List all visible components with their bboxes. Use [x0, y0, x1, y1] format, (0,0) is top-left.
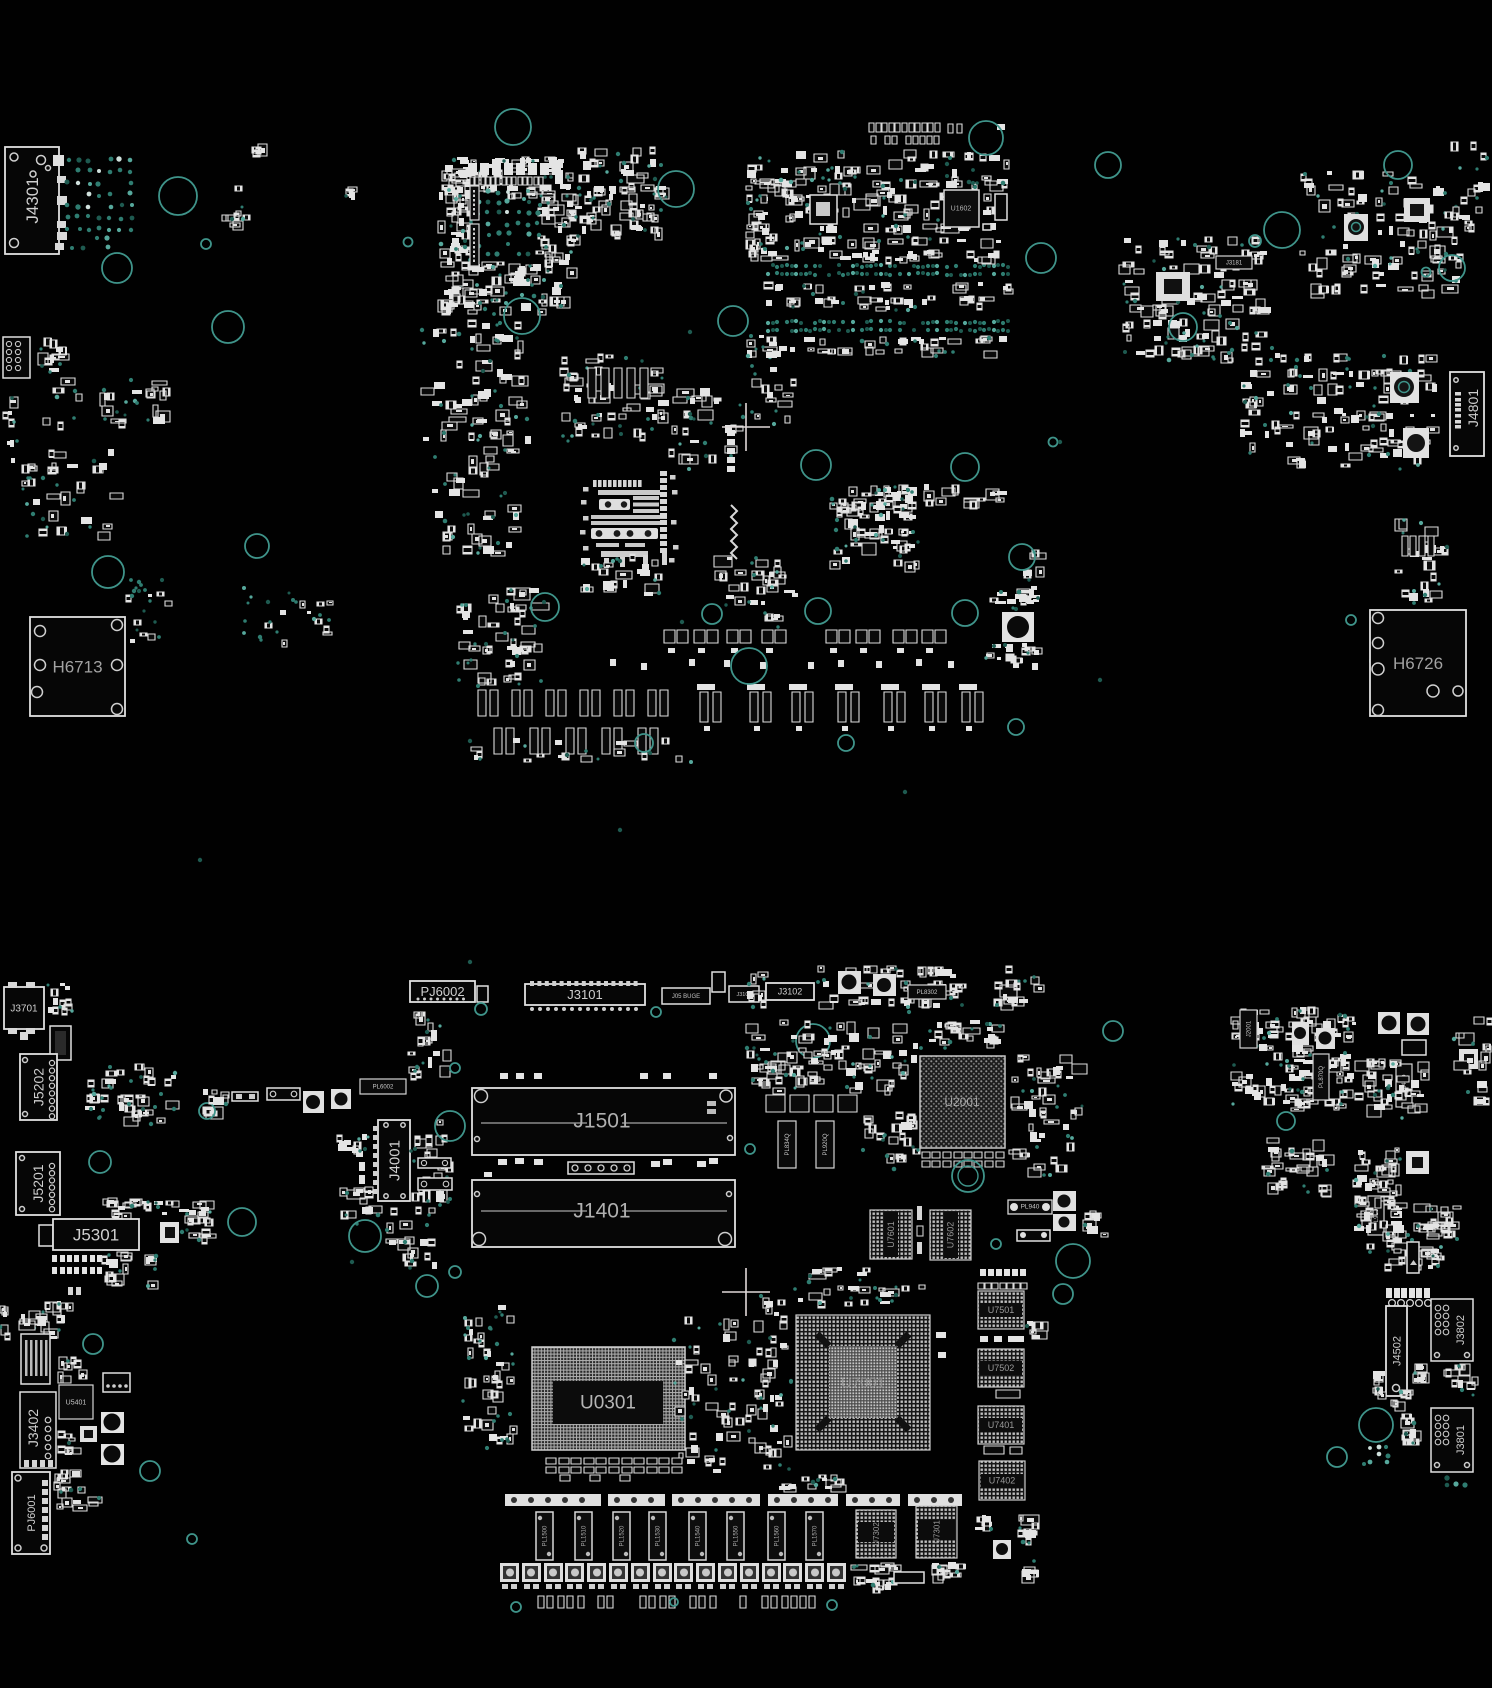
svg-text:J4301: J4301	[23, 177, 42, 223]
svg-text:PL8302: PL8302	[917, 990, 938, 996]
svg-text:PL834Q: PL834Q	[785, 1133, 791, 1155]
svg-text:J1401: J1401	[573, 1199, 630, 1222]
svg-text:J05 BUGE: J05 BUGE	[672, 994, 700, 1000]
svg-text:PL1510: PL1510	[582, 1525, 588, 1546]
svg-text:PL940: PL940	[1021, 1203, 1040, 1210]
svg-text:U7602: U7602	[946, 1222, 956, 1249]
svg-text:U2001: U2001	[944, 1095, 980, 1109]
svg-text:U7501: U7501	[988, 1305, 1015, 1315]
svg-text:PL1530: PL1530	[656, 1525, 662, 1546]
svg-text:PL1540: PL1540	[696, 1525, 702, 1546]
svg-text:PL870Q: PL870Q	[1319, 1066, 1325, 1088]
svg-text:U7402: U7402	[989, 1476, 1016, 1486]
svg-text:J3101: J3101	[567, 987, 602, 1002]
svg-text:PL6002: PL6002	[373, 1085, 394, 1091]
svg-text:U1602: U1602	[951, 205, 972, 212]
svg-text:PL920Q: PL920Q	[823, 1133, 829, 1155]
svg-text:J4801: J4801	[1465, 389, 1481, 427]
svg-text:H6713: H6713	[52, 657, 102, 676]
svg-text:U7301: U7301	[932, 1520, 941, 1544]
svg-text:J5201: J5201	[30, 1164, 46, 1202]
svg-text:J1501: J1501	[573, 1109, 630, 1132]
svg-text:U0301: U0301	[580, 1393, 636, 1414]
svg-text:J5202: J5202	[30, 1068, 46, 1106]
svg-text:PL1560: PL1560	[775, 1525, 781, 1546]
svg-text:U7001: U7001	[841, 1374, 885, 1391]
svg-text:U5401: U5401	[66, 1399, 87, 1406]
svg-text:J5301: J5301	[73, 1225, 119, 1244]
svg-text:J3102: J3102	[778, 987, 803, 997]
svg-text:J4001: J4001	[386, 1140, 403, 1181]
svg-text:J3402: J3402	[25, 1409, 41, 1447]
svg-text:J4502: J4502	[1391, 1336, 1403, 1366]
svg-text:PL1500: PL1500	[543, 1525, 549, 1546]
svg-text:J3802: J3802	[1455, 1315, 1467, 1345]
svg-text:PL1520: PL1520	[620, 1525, 626, 1546]
svg-text:U7302: U7302	[872, 1522, 881, 1546]
svg-text:J3181: J3181	[1226, 261, 1243, 267]
svg-text:J3801: J3801	[1455, 1425, 1467, 1455]
svg-text:PL1570: PL1570	[813, 1525, 819, 1546]
svg-text:PL1550: PL1550	[734, 1525, 740, 1546]
svg-text:PJ6001: PJ6001	[26, 1494, 38, 1531]
svg-text:H6726: H6726	[1393, 654, 1443, 673]
svg-text:J3701: J3701	[10, 1004, 38, 1015]
svg-text:U7502: U7502	[988, 1363, 1015, 1373]
svg-text:PJ6002: PJ6002	[420, 984, 464, 999]
svg-text:J2001: J2001	[1247, 1020, 1253, 1037]
svg-text:U7401: U7401	[988, 1420, 1015, 1430]
svg-text:U7601: U7601	[886, 1221, 896, 1248]
